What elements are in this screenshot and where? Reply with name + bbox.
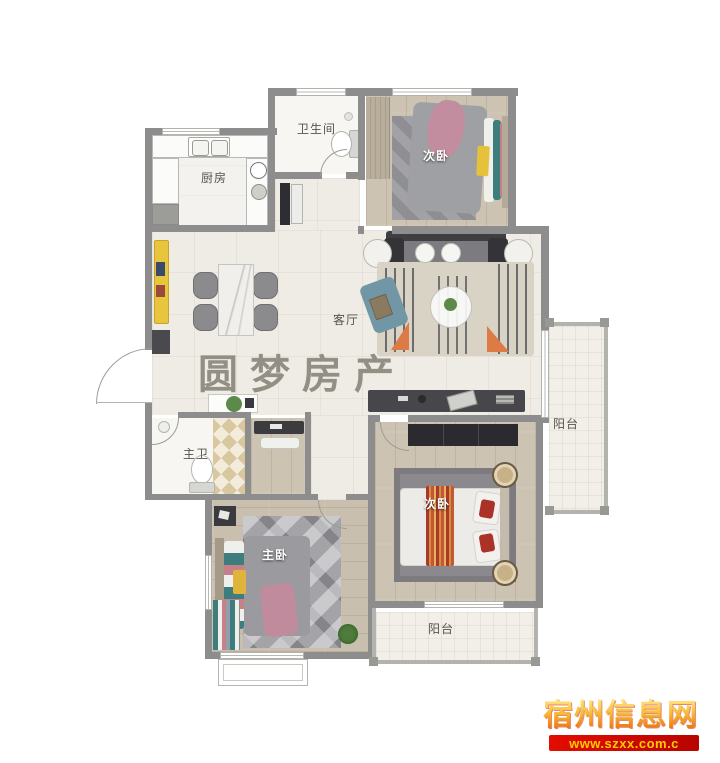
wall: [268, 92, 275, 232]
frame-corner: [545, 506, 554, 515]
wall: [508, 88, 516, 234]
wall-art-mark-1: [156, 262, 165, 276]
sink-basin-right: [211, 140, 228, 156]
frame-corner: [545, 318, 554, 327]
wardrobe-divider-1: [443, 424, 444, 446]
room-label-bedroom-top: 次卧: [423, 147, 449, 164]
wardrobe-divider-2: [478, 424, 479, 446]
dining-chair-3: [253, 272, 278, 299]
wall: [145, 128, 152, 350]
window-bedroom-top: [392, 88, 472, 96]
nightstand-round-bottom: [492, 560, 518, 586]
balcony-bottom-frame-left: [372, 608, 376, 664]
wall: [178, 412, 248, 418]
site-badge: 宿州信息网 www.szxx.com.c: [543, 698, 705, 751]
wall: [368, 415, 380, 422]
balcony-bottom-frame-bottom: [372, 660, 538, 664]
site-url-banner: www.szxx.com.c: [549, 735, 699, 751]
bathroom-accessory: [344, 112, 353, 121]
wall: [305, 412, 311, 500]
hallway-floor: [311, 415, 368, 500]
dressing-dresser-item: [270, 424, 282, 429]
balcony-right-frame-right: [604, 322, 608, 514]
room-label-bathroom: 卫生间: [297, 120, 336, 137]
hall-cabinet-dark: [280, 183, 290, 225]
stove-burner: [251, 184, 267, 200]
wall: [408, 415, 543, 422]
bedroom-bottom-wardrobe: [408, 424, 518, 446]
balcony-bottom-frame-right: [534, 608, 538, 664]
bay-window-opening: [220, 652, 304, 659]
room-label-balcony-right: 阳台: [553, 415, 579, 432]
bedroom-bottom-headboard: [500, 486, 509, 566]
wall: [346, 172, 365, 179]
room-label-balcony-bottom: 阳台: [428, 620, 454, 637]
wall: [145, 494, 318, 500]
entry-shoe-cabinet: [152, 330, 170, 354]
wall: [268, 172, 322, 179]
balcony-slider-bottom: [424, 601, 504, 608]
frame-corner: [531, 657, 540, 666]
master-bath-mosaic: [213, 418, 245, 494]
dining-table: [218, 264, 254, 336]
balcony-slider-right: [541, 330, 549, 418]
entry-door-arc: [96, 348, 152, 404]
room-label-living: 客厅: [333, 311, 359, 328]
room-label-master-bedroom: 主卧: [262, 546, 288, 563]
stove-dial: [250, 162, 267, 179]
master-plant: [338, 624, 358, 644]
dining-chair-4: [253, 304, 278, 331]
window-master-left: [205, 555, 212, 610]
hall-fridge: [291, 184, 303, 224]
frame-corner: [369, 657, 378, 666]
room-label-bedroom-bottom: 次卧: [424, 495, 450, 512]
wall: [536, 415, 543, 608]
balcony-bottom-floor: [376, 612, 534, 660]
site-url: www.szxx.com.c: [569, 736, 679, 751]
red-pillow-bottom: [479, 533, 496, 553]
dining-chair-2: [193, 304, 218, 331]
bedroom-top-wardrobe: [366, 97, 390, 179]
pendant-lamp-left: [415, 243, 435, 263]
wall: [245, 412, 251, 500]
site-name: 宿州信息网: [543, 698, 705, 734]
wall: [145, 225, 275, 232]
tv-console-stack: [496, 395, 514, 404]
wall-art-mark-2: [156, 285, 165, 297]
master-clothes-rack: [213, 600, 240, 650]
living-rug-stripes-3: [498, 264, 530, 354]
dressing-bench: [260, 437, 300, 449]
nightstand-round-top: [492, 462, 518, 488]
floorplan-canvas: 厨房 卫生间 次卧 客厅 主卫 主卧 次卧 阳台 阳台 圆梦房产 宿州信息网 w…: [0, 0, 720, 763]
room-label-master-bath: 主卫: [183, 445, 209, 462]
wall: [358, 226, 364, 234]
room-label-kitchen: 厨房: [201, 169, 227, 186]
wall: [205, 652, 220, 659]
wall: [145, 412, 152, 418]
wall: [392, 226, 549, 234]
tv-console-item-2: [418, 395, 426, 403]
window-kitchen: [162, 128, 220, 135]
master-blanket-pink: [259, 582, 298, 637]
master-toilet-tank: [189, 482, 215, 493]
dining-chair-1: [193, 272, 218, 299]
master-yellow-item: [233, 570, 246, 594]
wall: [541, 226, 549, 330]
wall: [358, 88, 365, 180]
wall: [368, 601, 424, 608]
entry-door-leaf: [96, 402, 152, 403]
kitchen-base-cabinet: [152, 204, 179, 225]
agency-watermark: 圆梦房产: [198, 342, 406, 400]
coffee-table-plant: [444, 298, 457, 311]
sink-basin-left: [192, 140, 209, 156]
wall: [504, 601, 543, 608]
bay-window: [218, 659, 308, 686]
bay-window-inner-line: [223, 664, 303, 681]
wall: [304, 652, 375, 659]
window-bathroom: [296, 88, 346, 96]
wall-art-yellow: [154, 240, 169, 324]
bedroom-top-yellow-item: [476, 146, 490, 177]
frame-corner: [600, 506, 609, 515]
frame-corner: [600, 318, 609, 327]
kitchen-counter-left: [152, 158, 179, 204]
pendant-lamp-right: [441, 243, 461, 263]
